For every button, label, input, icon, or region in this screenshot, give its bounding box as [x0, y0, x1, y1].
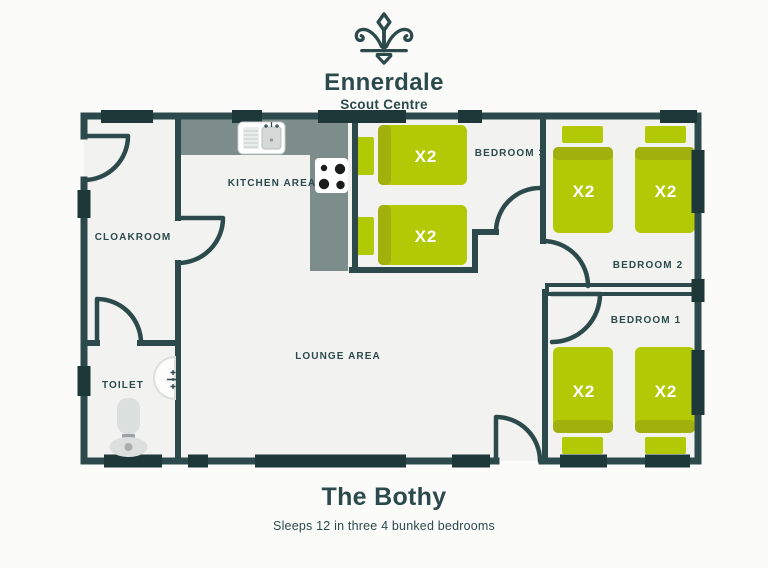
bed-x2-label: X2 — [573, 182, 596, 201]
label-cloakroom: CLOAKROOM — [95, 232, 172, 243]
label-bedroom1: BEDROOM 1 — [611, 315, 681, 326]
kitchen-sink — [238, 122, 285, 154]
bed-x2-label: X2 — [415, 227, 438, 246]
bed-x2-label: X2 — [655, 182, 678, 201]
label-bedroom3: BEDROOM 3 — [475, 148, 545, 159]
stove-hob — [315, 158, 348, 193]
label-lounge: LOUNGE AREA — [295, 351, 381, 362]
building-title: The Bothy — [0, 483, 768, 512]
label-kitchen: KITCHEN AREA — [228, 178, 316, 189]
bed-x2-label: X2 — [573, 382, 596, 401]
label-bedroom2: BEDROOM 2 — [613, 260, 683, 271]
bed-x2-label: X2 — [655, 382, 678, 401]
bed-x2-label: X2 — [415, 147, 438, 166]
building-subtitle: Sleeps 12 in three 4 bunked bedrooms — [0, 519, 768, 533]
label-toilet: TOILET — [102, 380, 144, 391]
plan-footer: The Bothy Sleeps 12 in three 4 bunked be… — [0, 483, 768, 533]
